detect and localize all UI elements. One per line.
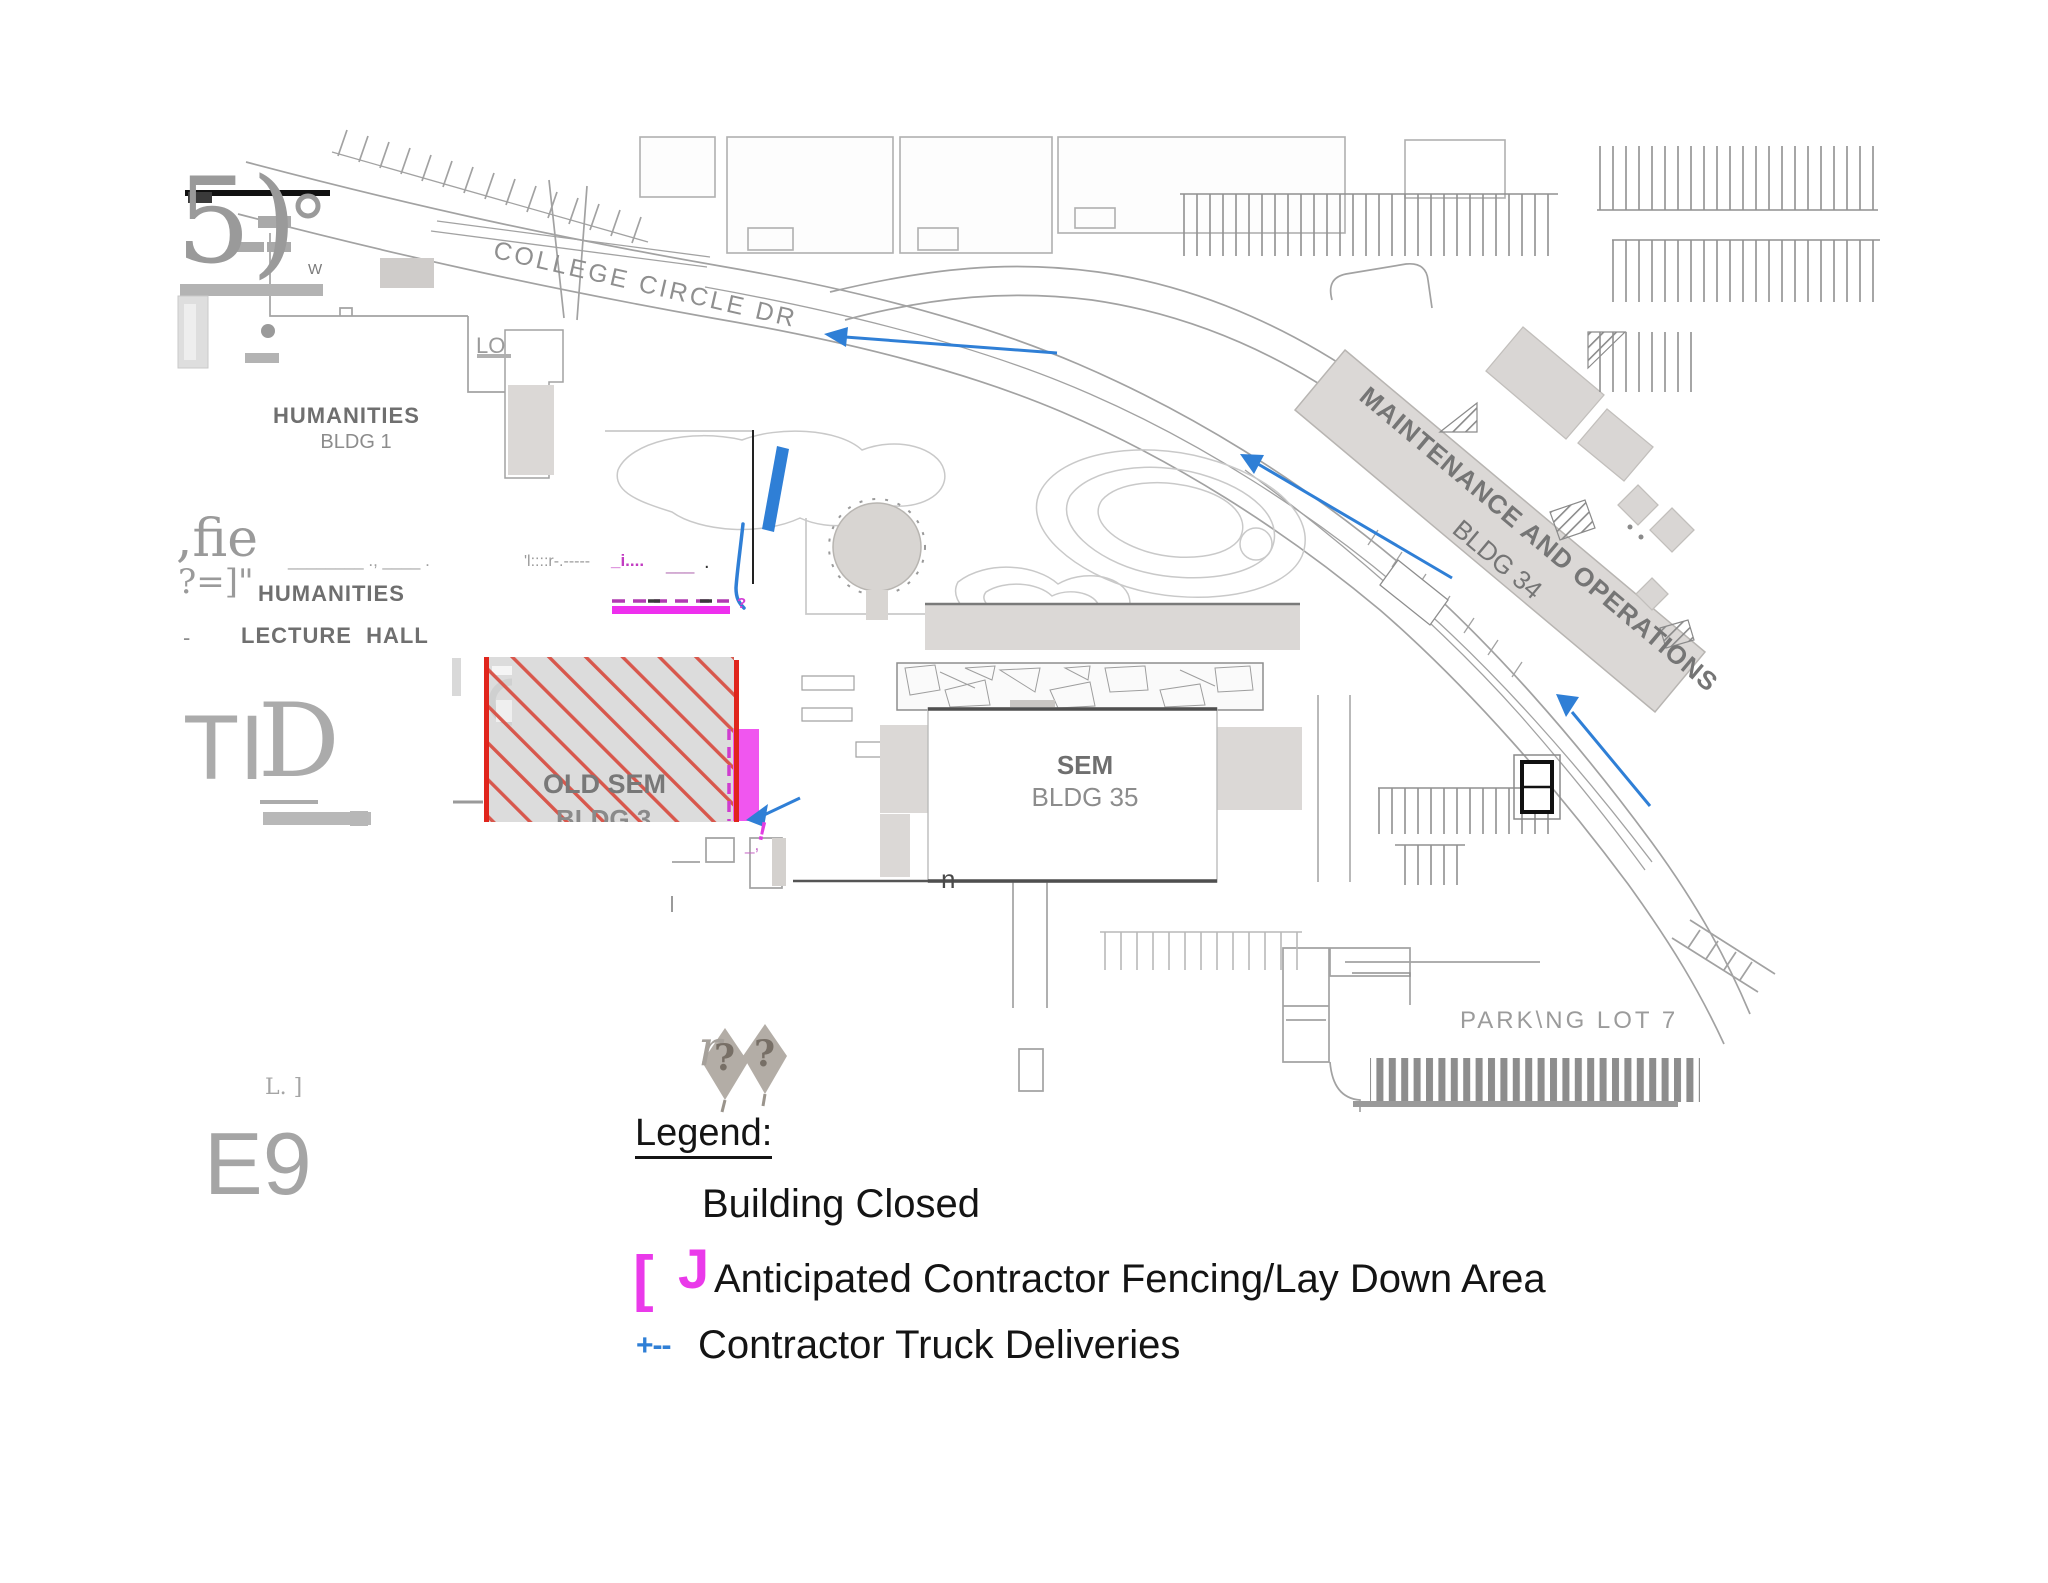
artifact-5paren: 5) (176, 168, 297, 274)
artifact-bracket: ?=]" (178, 565, 254, 601)
artifact-ti: TI (183, 700, 265, 797)
artifact-noise-magenta: _i.... (611, 552, 644, 570)
tree-question-1: ? (714, 1040, 735, 1078)
sem-label: SEM (1000, 752, 1170, 779)
lo-mark: LO (476, 334, 505, 357)
gray-buildings (178, 190, 1705, 1112)
truck-route-swatch-icon: +-- (636, 1330, 671, 1362)
w-mark: W (308, 262, 322, 278)
legend-title: Legend: (635, 1114, 772, 1159)
artifact-n: n (941, 866, 955, 893)
lecture-hall-dash: - (183, 626, 190, 649)
humanities1-sublabel: BLDG 1 (273, 432, 439, 453)
lecture-hall-label-1: HUMANITIES (258, 582, 405, 605)
humanities1-label: HUMANITIES (273, 404, 420, 427)
parking-lot7-bars (1353, 1058, 1700, 1104)
artifact-magenta-question: ? (737, 596, 746, 612)
legend-item-building-closed: Building Closed (702, 1183, 980, 1225)
artifact-magenta-comma: _, (745, 836, 759, 854)
legend-item-truck-deliveries: Contractor Truck Deliveries (698, 1324, 1180, 1366)
parking-lot7-label: PARK\NG LOT 7 (1460, 1008, 1678, 1033)
legend-item-fencing: Anticipated Contractor Fencing/Lay Down … (714, 1258, 1546, 1300)
artifact-noise-magenta2: ___ (666, 556, 694, 574)
old-sem-closed-building (350, 657, 734, 826)
fencing-swatch-left-icon: [ (633, 1246, 654, 1311)
site-plan-page: COLLEGE CIRCLE DR HUMANITIES BLDG 1 HUMA… (0, 0, 2048, 1583)
artifact-e9: E9 (204, 1118, 312, 1210)
artifact-fie: ,fie (176, 512, 258, 567)
tick-artifact (671, 896, 673, 912)
sem-sublabel: BLDG 35 (1000, 784, 1170, 811)
tree-question-2: ? (754, 1036, 775, 1074)
lecture-hall-label-2: LECTURE HALL (241, 624, 429, 647)
old-sem-sublabel: BLDG 3 (556, 806, 651, 822)
fencing-swatch-right-icon: J (678, 1240, 709, 1299)
old-sem-label: OLD SEM (543, 770, 666, 798)
artifact-noise: 'l::::r-.----- (524, 554, 590, 571)
artifact-underscores: ________ ., ____ . (288, 552, 430, 570)
artifact-d: D (258, 688, 340, 795)
artifact-lj: L. ] (265, 1076, 302, 1099)
artifact-noise-dot: . (704, 552, 710, 573)
utility-structure (1514, 755, 1560, 819)
